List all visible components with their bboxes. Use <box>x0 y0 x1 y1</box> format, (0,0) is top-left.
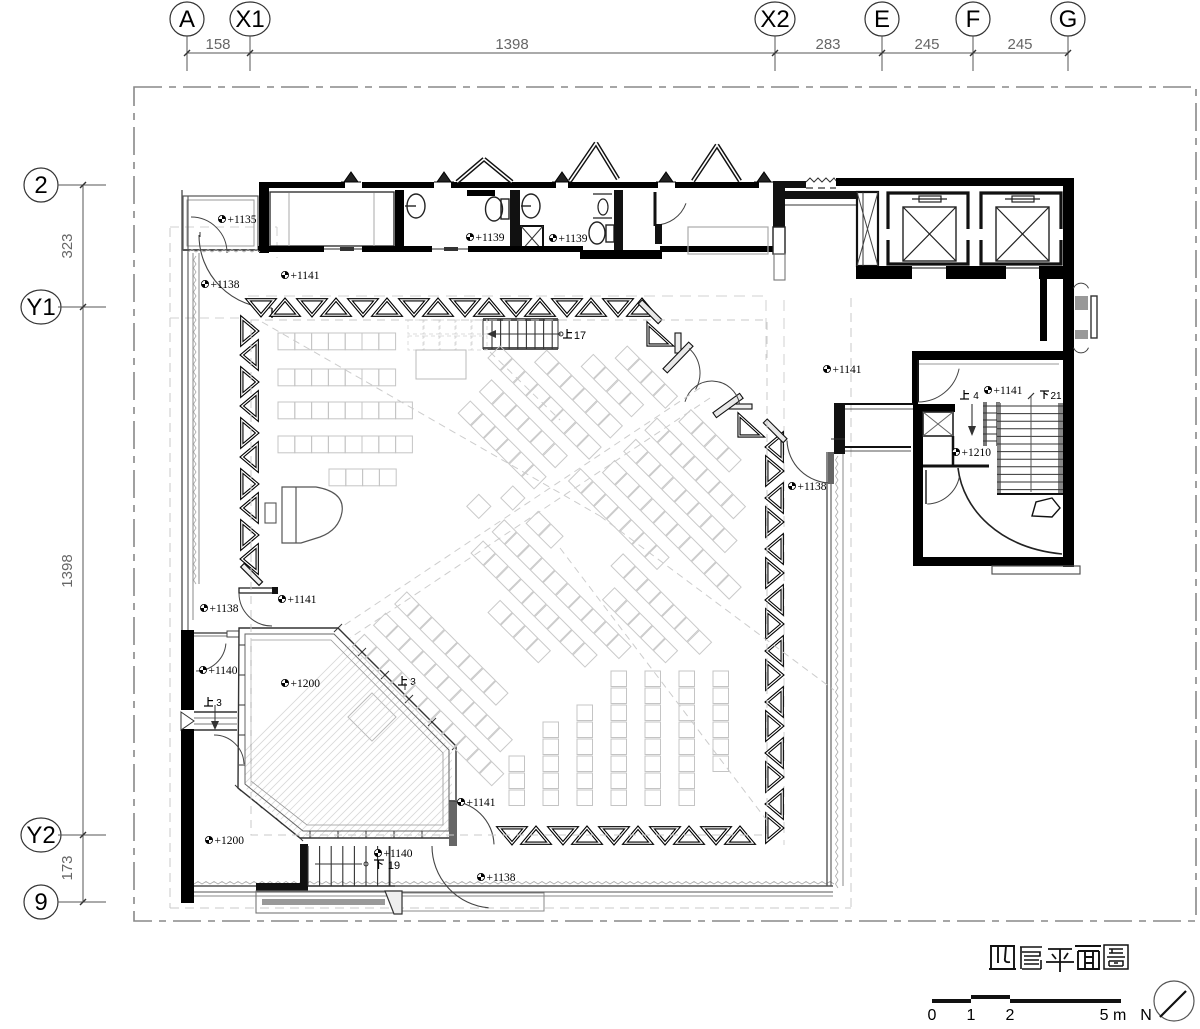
svg-text:A: A <box>179 6 195 33</box>
svg-text:+1141: +1141 <box>288 594 317 606</box>
svg-text:+1141: +1141 <box>291 270 320 282</box>
svg-text:Y1: Y1 <box>26 294 55 321</box>
svg-text:2: 2 <box>34 172 47 199</box>
svg-text:X1: X1 <box>235 6 264 33</box>
svg-text:+1135: +1135 <box>228 214 257 226</box>
svg-text:F: F <box>966 6 981 33</box>
svg-text:0: 0 <box>928 1007 937 1024</box>
svg-text:+1200: +1200 <box>291 678 321 690</box>
svg-text:5 m: 5 m <box>1100 1007 1127 1024</box>
svg-text:+1138: +1138 <box>210 603 239 615</box>
svg-text:+1141: +1141 <box>833 364 862 376</box>
svg-text:173: 173 <box>59 855 76 880</box>
svg-text:+1138: +1138 <box>487 872 516 884</box>
svg-text:+1138: +1138 <box>211 279 240 291</box>
svg-text:+1210: +1210 <box>962 447 992 459</box>
svg-text:3: 3 <box>216 698 222 709</box>
svg-text:N: N <box>1140 1007 1152 1024</box>
svg-text:+1140: +1140 <box>209 665 238 677</box>
svg-text:+1141: +1141 <box>467 797 496 809</box>
svg-text:1: 1 <box>967 1007 976 1024</box>
svg-text:X2: X2 <box>760 6 789 33</box>
svg-text:+1139: +1139 <box>476 232 505 244</box>
svg-text:+1141: +1141 <box>994 385 1023 397</box>
svg-text:2: 2 <box>1006 1007 1015 1024</box>
svg-text:G: G <box>1059 6 1078 33</box>
svg-text:245: 245 <box>914 36 939 53</box>
svg-text:E: E <box>874 6 890 33</box>
svg-text:Y2: Y2 <box>26 822 55 849</box>
svg-text:+1138: +1138 <box>798 481 827 493</box>
svg-text:+1139: +1139 <box>559 233 588 245</box>
svg-text:1398: 1398 <box>59 554 76 587</box>
svg-text:245: 245 <box>1007 36 1032 53</box>
svg-text:323: 323 <box>59 233 76 258</box>
svg-text:+1140: +1140 <box>384 848 413 860</box>
svg-text:17: 17 <box>574 330 586 342</box>
svg-text:283: 283 <box>815 36 840 53</box>
svg-text:158: 158 <box>205 36 230 53</box>
svg-text:1398: 1398 <box>495 36 528 53</box>
svg-text:9: 9 <box>34 889 47 916</box>
svg-text:21: 21 <box>1050 391 1062 402</box>
svg-text:4: 4 <box>973 391 979 402</box>
svg-text:19: 19 <box>388 860 400 872</box>
svg-text:+1200: +1200 <box>215 835 245 847</box>
